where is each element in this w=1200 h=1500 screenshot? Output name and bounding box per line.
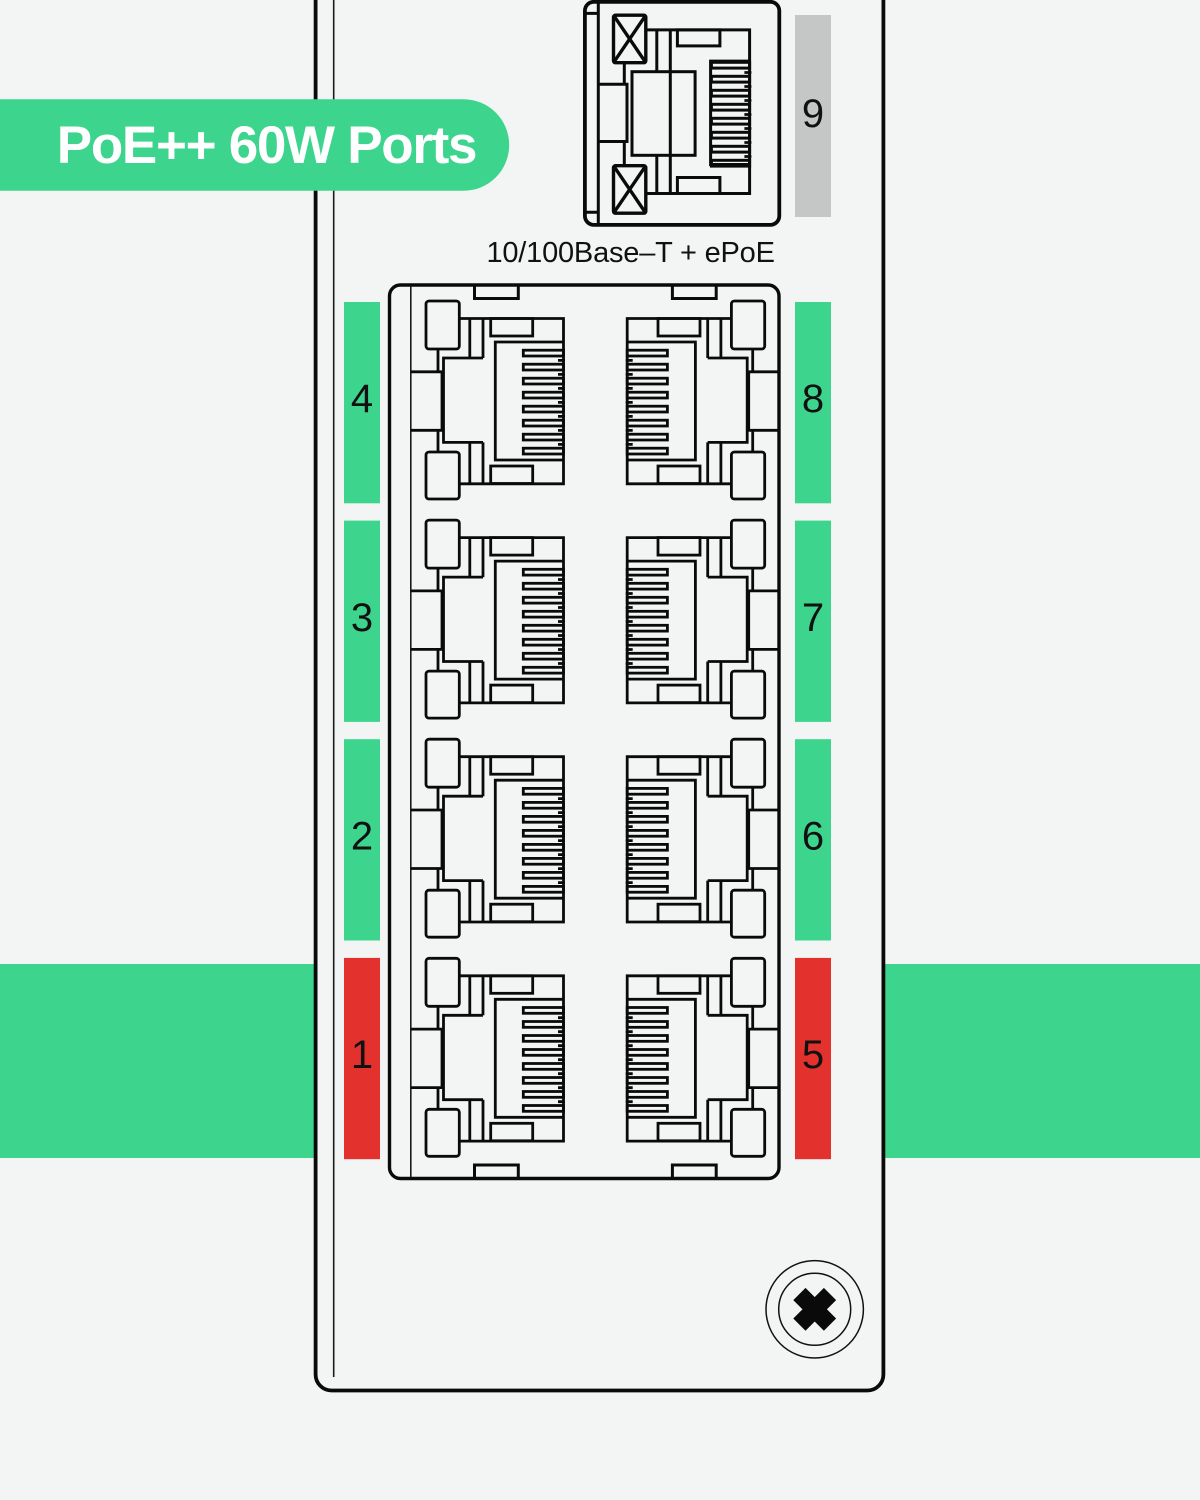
svg-text:1: 1 xyxy=(351,1033,373,1077)
svg-text:9: 9 xyxy=(802,92,824,136)
svg-text:5: 5 xyxy=(802,1033,824,1077)
svg-text:4: 4 xyxy=(351,377,373,421)
svg-text:6: 6 xyxy=(802,814,824,858)
svg-text:8: 8 xyxy=(802,377,824,421)
svg-text:7: 7 xyxy=(802,596,824,640)
svg-text:PoE++ 60W Ports: PoE++ 60W Ports xyxy=(57,116,476,175)
svg-text:10/100Base–T + ePoE: 10/100Base–T + ePoE xyxy=(486,237,774,269)
svg-text:2: 2 xyxy=(351,814,373,858)
svg-text:3: 3 xyxy=(351,596,373,640)
